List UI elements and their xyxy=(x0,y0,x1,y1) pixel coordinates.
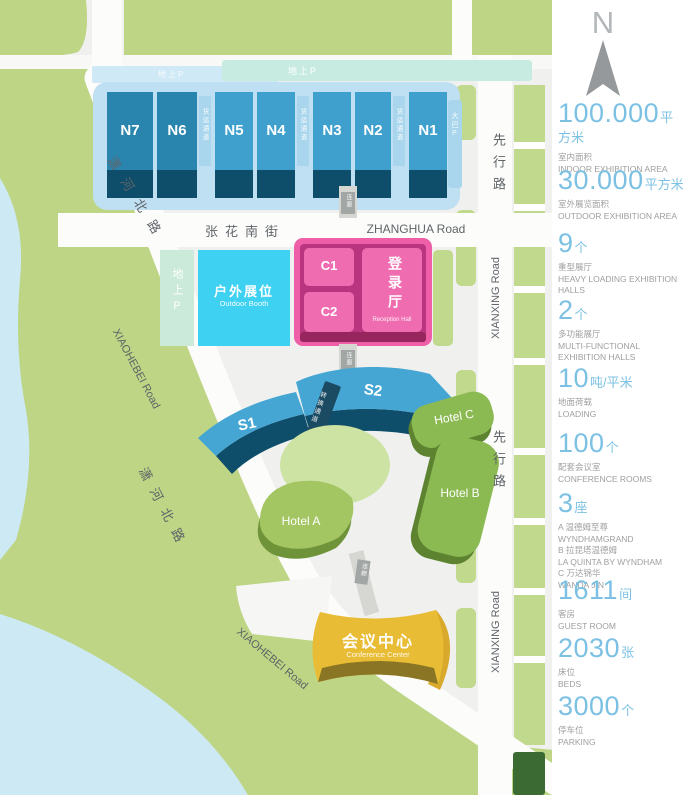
stat-value: 3 xyxy=(558,488,574,518)
zhanghua-road-cn-label: 张花南街 xyxy=(190,221,300,240)
stat-label-cn: 室内面积 xyxy=(558,152,684,164)
stat-label-en: BEDS xyxy=(558,679,684,691)
stat-unit: 个 xyxy=(606,440,619,455)
stat-unit: 平方米 xyxy=(645,177,684,192)
freight-passage-label: 货运通道 xyxy=(393,108,403,142)
stat-label-en: OUTDOOR EXHIBITION AREA xyxy=(558,211,684,223)
stat-value: 30.000 xyxy=(558,165,644,195)
hall-c1-label: C1 xyxy=(304,258,354,273)
freight-passage-label: 货运通道 xyxy=(297,108,307,142)
parking-bar-top xyxy=(222,60,532,81)
stat-value: 100.000 xyxy=(558,98,659,128)
stat-label-en: GUEST ROOM xyxy=(558,621,684,633)
hotel-line: LA QUINTA BY WYNDHAM xyxy=(558,557,684,569)
stat-outdoor-area: 30.000平方米 室外展览面积OUTDOOR EXHIBITION AREA xyxy=(558,167,684,222)
hall-n2-label: N2 xyxy=(355,122,391,139)
corridor-label: 连廊 xyxy=(344,352,353,366)
north-halls xyxy=(93,82,462,210)
reception-block xyxy=(294,238,432,346)
site-map: 地上P 地上P N7 N6 N5 N4 N3 N2 N1 货运通道 货运通道 货… xyxy=(0,0,555,795)
stat-unit: 张 xyxy=(621,645,634,660)
hotel-line: WYNDHAMGRAND xyxy=(558,534,684,546)
stats-panel: N 100.000平方米 室内面积INDOOR EXHIBITION AREA … xyxy=(552,0,685,795)
stat-indoor-area: 100.000平方米 室内面积INDOOR EXHIBITION AREA xyxy=(558,100,684,175)
exhibition-center-map-infographic: 地上P 地上P N7 N6 N5 N4 N3 N2 N1 货运通道 货运通道 货… xyxy=(0,0,685,795)
conference-center-en-label: Conference Center xyxy=(338,650,418,659)
stat-unit: 个 xyxy=(621,703,634,718)
stat-label-en: PARKING xyxy=(558,737,684,749)
ground-parking-label: 地上P xyxy=(169,268,185,317)
outdoor-booth-en-label: Outdoor Booth xyxy=(204,299,284,308)
stat-beds: 2030张 床位BEDS xyxy=(558,635,684,690)
stat-value: 2030 xyxy=(558,633,620,663)
stat-unit: 座 xyxy=(575,500,588,515)
stat-label-cn: 客房 xyxy=(558,609,684,621)
hotel-b-label: Hotel B xyxy=(432,486,488,500)
stat-label-en: HEAVY LOADING EXHIBITION HALLS xyxy=(558,274,684,297)
hall-n6-label: N6 xyxy=(157,122,197,139)
stat-loading: 10吨/平米 地面荷载LOADING xyxy=(558,365,684,420)
stat-value: 1611 xyxy=(558,575,618,605)
stat-conference-rooms: 100个 配套会议室CONFERENCE ROOMS xyxy=(558,430,684,485)
stat-label-en: CONFERENCE ROOMS xyxy=(558,474,684,486)
stat-label-cn: 室外展览面积 xyxy=(558,199,684,211)
hotel-line: B 拉昆塔温德姆 xyxy=(558,545,684,557)
zhanghua-road-en-label: ZHANGHUA Road xyxy=(366,222,466,236)
stat-unit: 间 xyxy=(619,587,632,602)
stat-heavy-halls: 9个 重型展厅HEAVY LOADING EXHIBITION HALLS xyxy=(558,230,684,297)
hall-n5-label: N5 xyxy=(215,122,253,139)
hall-s2-label: S2 xyxy=(357,380,389,401)
stat-value: 2 xyxy=(558,295,574,325)
stat-label-cn: 停车位 xyxy=(558,725,684,737)
xianxing-road-en-label: XIANXING Road xyxy=(490,253,502,343)
stat-label-cn: 床位 xyxy=(558,667,684,679)
stat-unit: 吨/平米 xyxy=(590,375,633,390)
xianxing-road-cn-label: 先行路 xyxy=(489,430,508,496)
stat-parking: 3000个 停车位PARKING xyxy=(558,693,684,748)
corridor-label: 连廊 xyxy=(358,562,369,577)
hall-n4-label: N4 xyxy=(257,122,295,139)
parking-bar-left-label: 地上P xyxy=(158,69,185,80)
hall-c2-label: C2 xyxy=(304,304,354,319)
hotel-a-label: Hotel A xyxy=(272,514,330,528)
stat-label-cn: 重型展厅 xyxy=(558,262,684,274)
hall-n3-label: N3 xyxy=(313,122,351,139)
site-map-canvas xyxy=(0,0,555,795)
stat-label-en: LOADING xyxy=(558,409,684,421)
reception-hall-cn-label: 登录厅 xyxy=(385,256,405,313)
compass-n-label: N xyxy=(582,6,624,40)
stat-label-cn: 配套会议室 xyxy=(558,462,684,474)
stat-guest-rooms: 1611间 客房GUEST ROOM xyxy=(558,577,684,632)
corridor-label: 连廊 xyxy=(344,194,353,208)
hotel-line: A 温德姆至尊 xyxy=(558,522,684,534)
stat-unit: 个 xyxy=(575,307,588,322)
outdoor-booth-cn-label: 户外展位 xyxy=(204,281,284,300)
conference-center-cn-label: 会议中心 xyxy=(338,628,418,652)
parking-bar-top-label: 地上P xyxy=(288,64,318,77)
stat-value: 9 xyxy=(558,228,574,258)
stat-value: 10 xyxy=(558,363,589,393)
xianxing-road-en-label: XIANXING Road xyxy=(490,587,502,677)
reception-hall-en-label: Reception Hall xyxy=(364,317,420,323)
bus-parking-label: 大巴P xyxy=(449,112,459,139)
stat-unit: 个 xyxy=(575,240,588,255)
stat-value: 3000 xyxy=(558,691,620,721)
north-arrow-icon xyxy=(586,40,620,96)
stat-label-cn: 地面荷载 xyxy=(558,397,684,409)
stat-multifunction-halls: 2个 多功能展厅MULTI-FUNCTIONAL EXHIBITION HALL… xyxy=(558,297,684,364)
dark-green-block xyxy=(513,752,545,795)
hall-n1-label: N1 xyxy=(409,122,447,139)
stat-value: 100 xyxy=(558,428,605,458)
compass: N xyxy=(582,6,624,96)
stat-label-en: MULTI-FUNCTIONAL EXHIBITION HALLS xyxy=(558,341,684,364)
freight-passage-label: 货运通道 xyxy=(199,108,209,142)
xianxing-road-cn-label: 先行路 xyxy=(489,133,508,199)
hall-n7-label: N7 xyxy=(107,122,153,139)
stat-label-cn: 多功能展厅 xyxy=(558,329,684,341)
